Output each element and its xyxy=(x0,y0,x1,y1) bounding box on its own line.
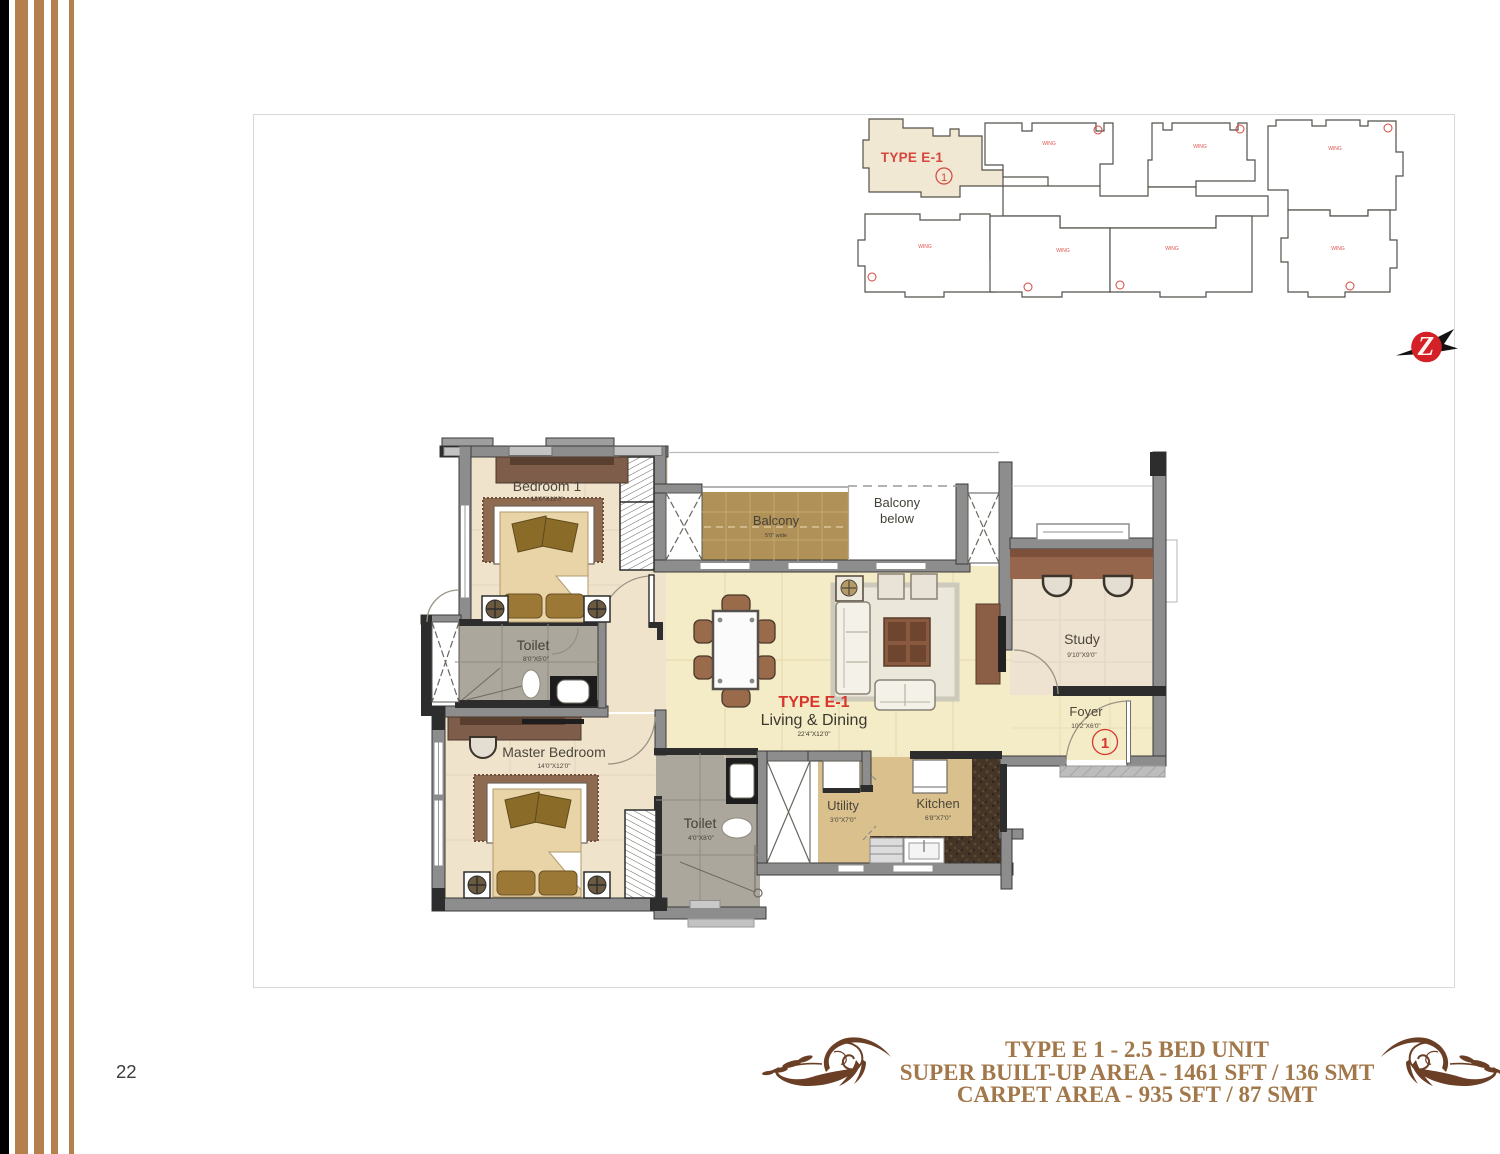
svg-text:1: 1 xyxy=(941,172,947,184)
svg-text:below: below xyxy=(880,511,915,526)
svg-text:4'0"X8'0": 4'0"X8'0" xyxy=(688,835,715,842)
svg-text:Master Bedroom: Master Bedroom xyxy=(502,744,605,760)
svg-text:WING: WING xyxy=(1042,141,1056,147)
svg-text:Living & Dining: Living & Dining xyxy=(761,712,868,729)
svg-text:Bedroom 1: Bedroom 1 xyxy=(513,478,582,494)
svg-text:9'10"X9'0": 9'10"X9'0" xyxy=(1067,652,1097,659)
svg-text:WING: WING xyxy=(1328,146,1342,152)
svg-text:WING: WING xyxy=(1193,144,1207,150)
svg-text:Z: Z xyxy=(1417,331,1435,361)
svg-text:1: 1 xyxy=(1101,735,1109,752)
svg-text:Balcony: Balcony xyxy=(874,495,921,510)
svg-text:8'0"X5'0": 8'0"X5'0" xyxy=(523,656,550,663)
svg-text:10'2"X6'0": 10'2"X6'0" xyxy=(1071,723,1101,730)
svg-text:WING: WING xyxy=(1331,246,1345,252)
svg-text:3'0"X7'0": 3'0"X7'0" xyxy=(830,817,857,824)
svg-text:Toilet: Toilet xyxy=(517,637,550,653)
svg-text:WING: WING xyxy=(1056,248,1070,254)
svg-text:Kitchen: Kitchen xyxy=(916,796,959,811)
svg-text:TYPE E 1 - 2.5 BED UNIT: TYPE E 1 - 2.5 BED UNIT xyxy=(1005,1037,1269,1062)
svg-text:WING: WING xyxy=(1165,246,1179,252)
svg-text:5'0" wide: 5'0" wide xyxy=(765,533,787,539)
svg-text:WING: WING xyxy=(918,244,932,250)
svg-text:12'0"X11'0": 12'0"X11'0" xyxy=(531,496,564,503)
svg-text:TYPE E-1: TYPE E-1 xyxy=(778,694,849,711)
svg-text:Foyer: Foyer xyxy=(1069,704,1103,719)
svg-text:Balcony: Balcony xyxy=(753,513,800,528)
svg-text:Study: Study xyxy=(1064,631,1100,647)
svg-text:Toilet: Toilet xyxy=(684,815,717,831)
svg-text:TYPE E-1: TYPE E-1 xyxy=(881,150,944,165)
svg-text:22: 22 xyxy=(116,1061,137,1082)
svg-text:6'8"X7'0": 6'8"X7'0" xyxy=(925,815,952,822)
svg-text:14'0"X12'0": 14'0"X12'0" xyxy=(537,763,571,770)
svg-text:22'4"X12'0": 22'4"X12'0" xyxy=(797,731,831,738)
svg-text:Utility: Utility xyxy=(827,798,859,813)
svg-text:CARPET AREA - 935 SFT / 87 SMT: CARPET AREA - 935 SFT / 87 SMT xyxy=(957,1082,1317,1107)
